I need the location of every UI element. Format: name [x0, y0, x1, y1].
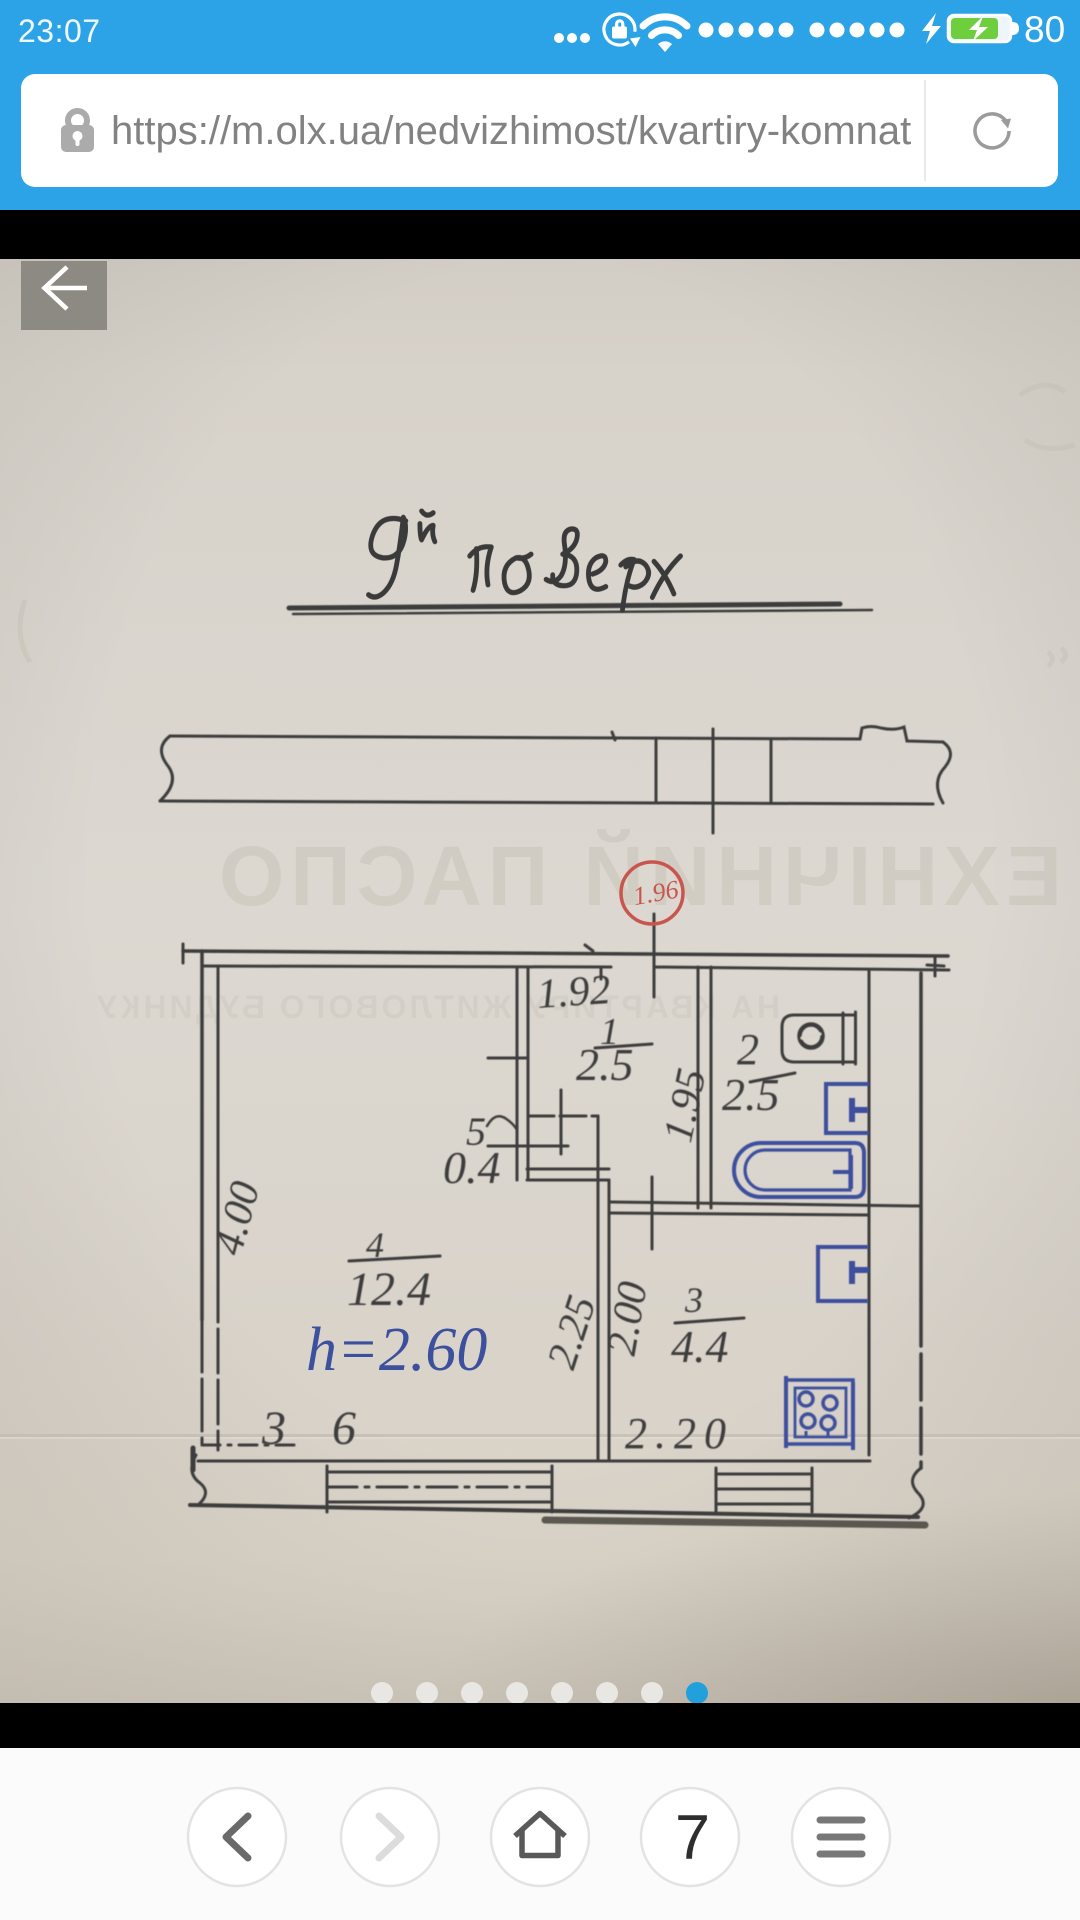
- svg-text:4: 4: [366, 1225, 384, 1265]
- svg-text:2: 2: [737, 1025, 759, 1074]
- svg-text:2.5: 2.5: [576, 1039, 634, 1090]
- svg-text:7: 7: [675, 1803, 710, 1873]
- svg-text:4.4: 4.4: [671, 1321, 729, 1372]
- svg-text:3: 3: [684, 1280, 703, 1320]
- svg-text:0.4: 0.4: [443, 1142, 501, 1193]
- svg-text:h=2.60: h=2.60: [306, 1316, 487, 1384]
- svg-text:80: 80: [1024, 9, 1065, 50]
- svg-text:НА КВАРТИРУ ЖИТЛОВОГО БУДИНКУ: НА КВАРТИРУ ЖИТЛОВОГО БУДИНКУ: [94, 989, 780, 1025]
- svg-text:12.4: 12.4: [347, 1263, 431, 1316]
- svg-text:36: 36: [261, 1402, 402, 1455]
- svg-text:2.20: 2.20: [625, 1409, 734, 1458]
- svg-text:2.5: 2.5: [722, 1069, 780, 1120]
